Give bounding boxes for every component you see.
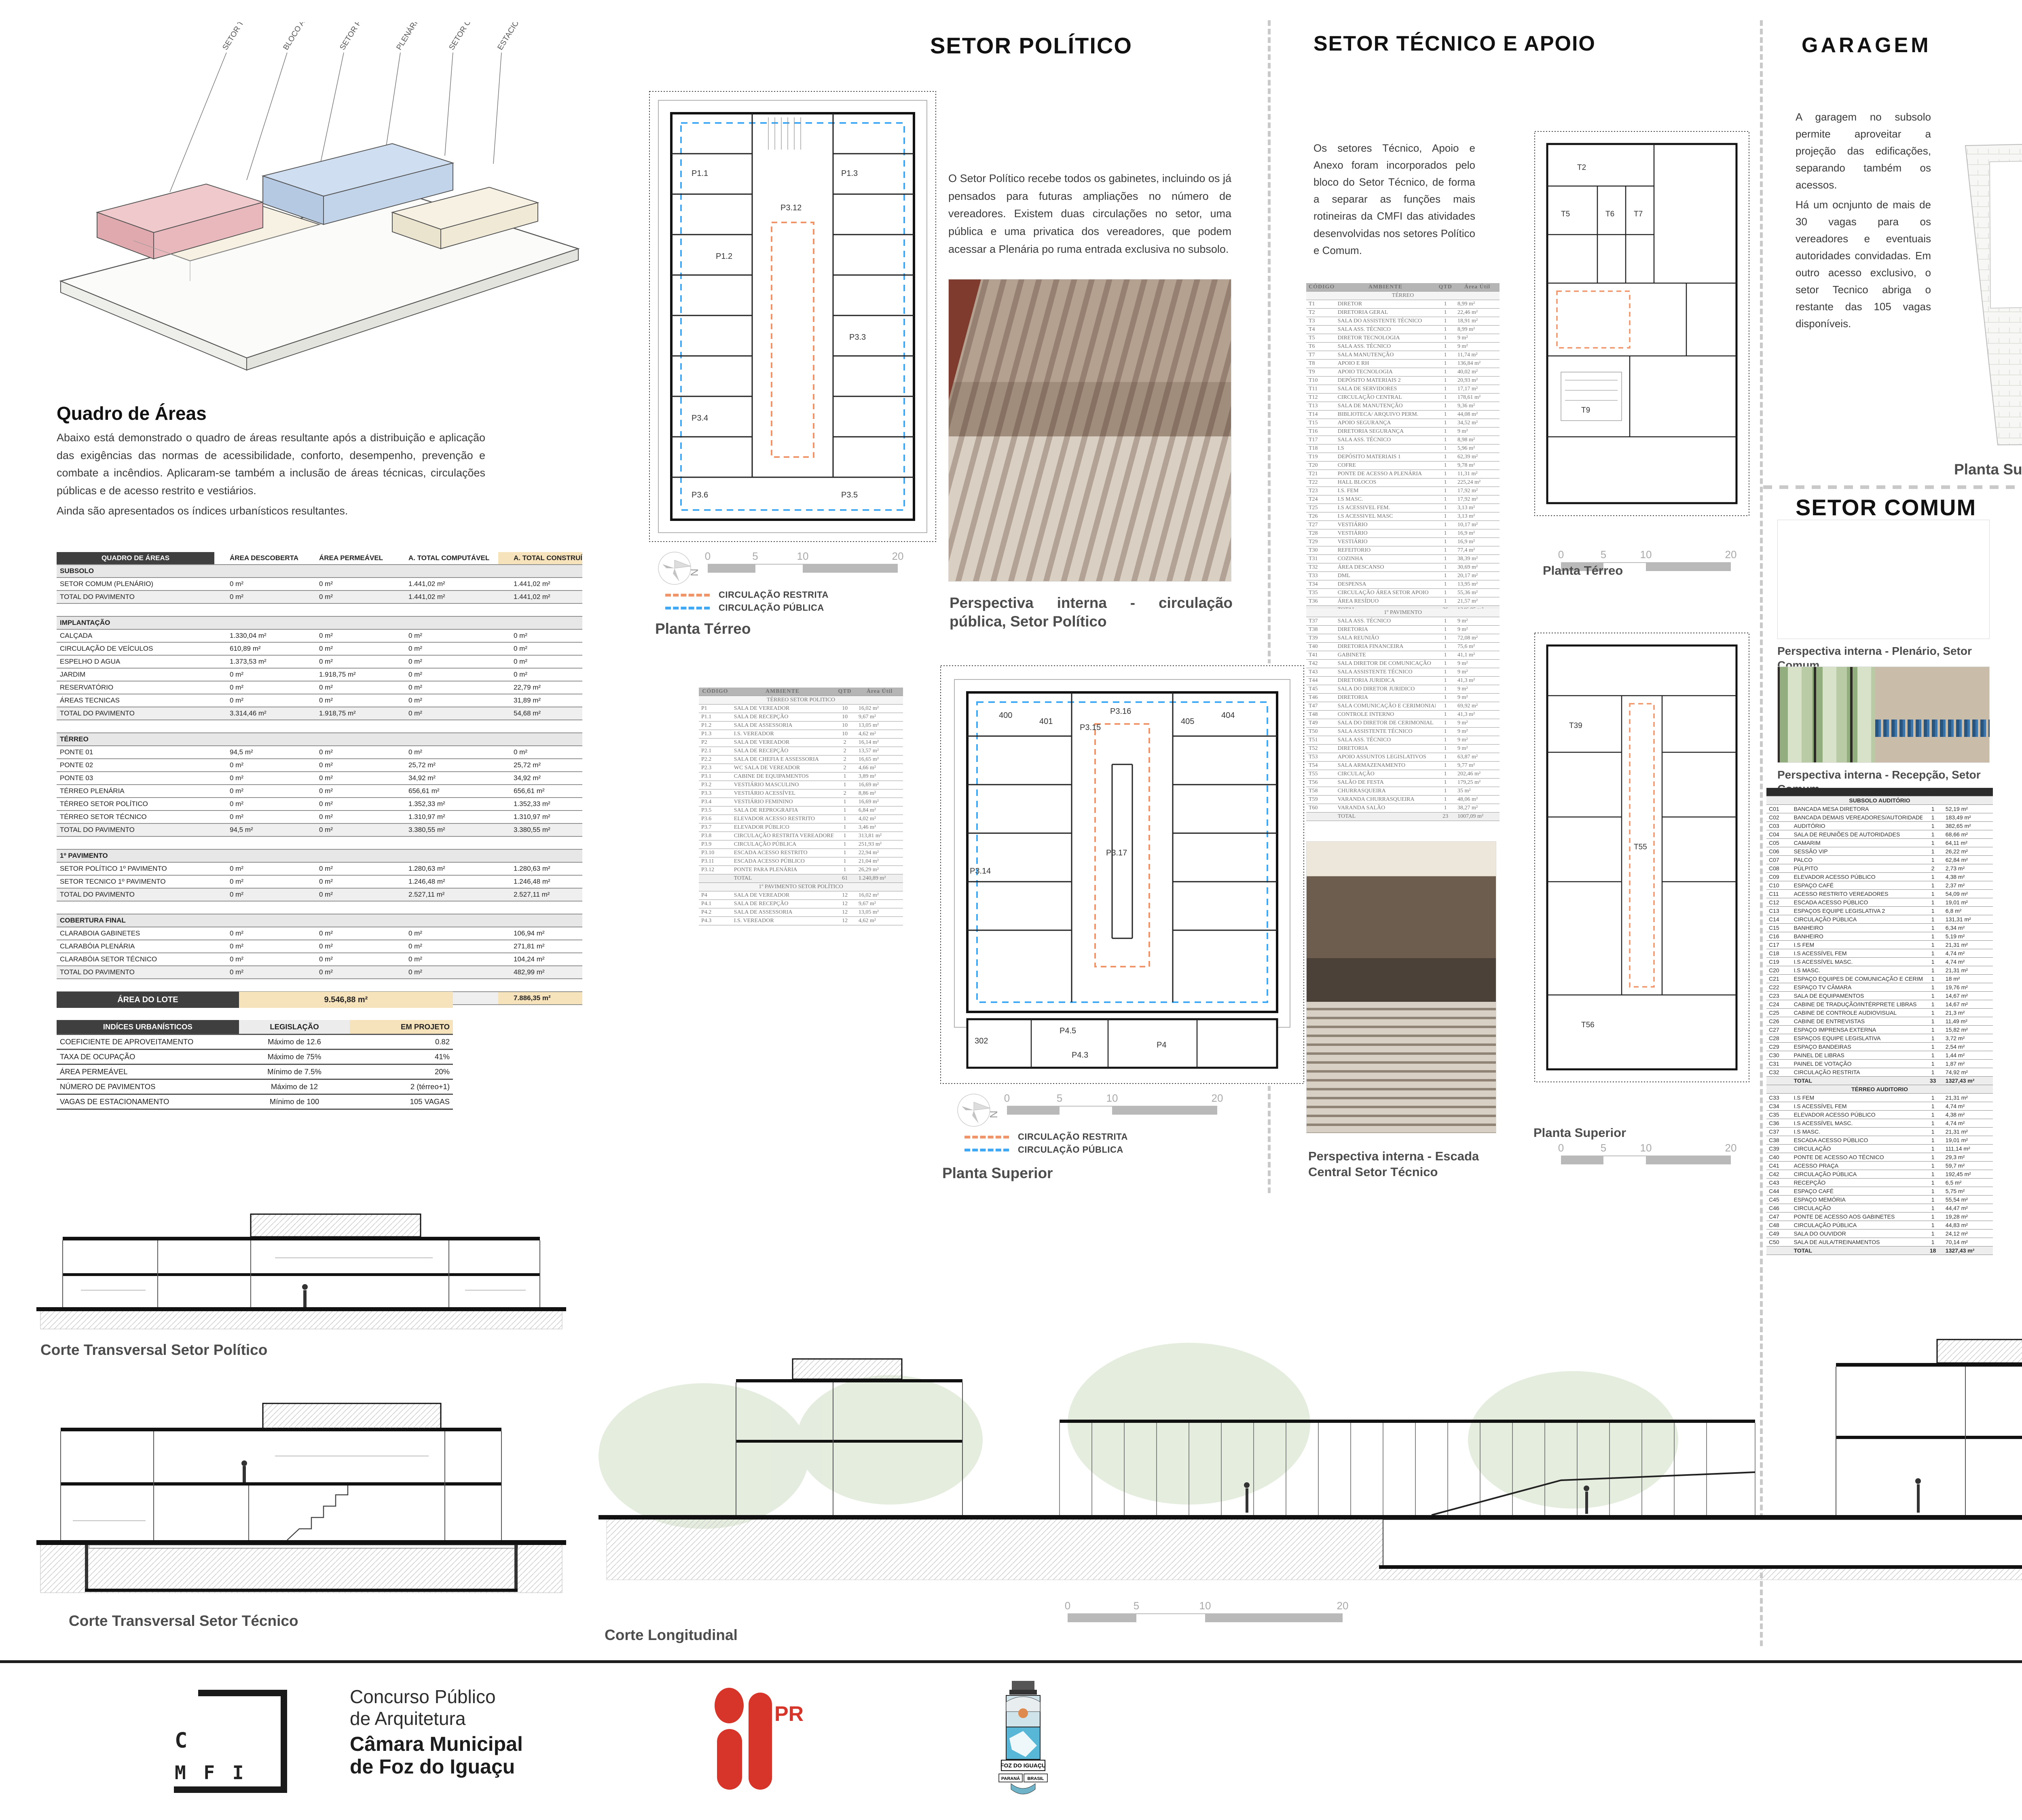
section-header-row: 1º PAVIMENTO SETOR POLÍTICO bbox=[699, 883, 903, 891]
section-header-row: TÉRREO bbox=[57, 733, 582, 746]
scale-label: 0 bbox=[1558, 1142, 1564, 1154]
column-header: QTD bbox=[1923, 788, 1943, 796]
svg-text:T2: T2 bbox=[1577, 163, 1586, 172]
table-row: T25I.S ACESSIVEL FEM.13,13 m² bbox=[1306, 504, 1500, 512]
svg-text:P3.17: P3.17 bbox=[1106, 849, 1127, 857]
scale-bar bbox=[708, 564, 898, 574]
column-header: Área Útil bbox=[1943, 788, 1993, 796]
table-row: PONTE 020 m²0 m²25,72 m²25,72 m² bbox=[57, 759, 582, 772]
table-row: C40PONTE DE ACESSO AO TÉCNICO129,3 m² bbox=[1766, 1153, 1993, 1162]
scale-label: 20 bbox=[1212, 1092, 1223, 1105]
sp-superior-legend: CIRCULAÇÃO RESTRITACIRCULAÇÃO PÚBLICA bbox=[964, 1129, 1128, 1158]
table-row: P4.1SALA DE RECEPÇÃO129,67 m² bbox=[699, 900, 903, 908]
sp-legend: CIRCULAÇÃO RESTRITACIRCULAÇÃO PÚBLICA bbox=[665, 587, 829, 616]
table-row: T9APOIO TECNOLOGIA140,02 m² bbox=[1306, 368, 1500, 377]
section-header-row: SUBSOLO bbox=[57, 565, 582, 578]
svg-text:PARANÁ: PARANÁ bbox=[1001, 1776, 1020, 1781]
column-header: CÓDIGO bbox=[1766, 788, 1791, 796]
garagem-caption: Planta Subsolo bbox=[1954, 460, 2022, 479]
area-table: QUADRO DE ÁREASÁREA DESCOBERTAÁREA PERME… bbox=[57, 552, 582, 1005]
st-room-table-terreo: CÓDIGOAMBIENTEQTDÁrea ÚtilTÉRREOT1DIRETO… bbox=[1306, 283, 1500, 614]
scale-label: 5 bbox=[1601, 548, 1606, 561]
total-row: VAGAS DE ESTACIONAMENTOMínimo de 100105 … bbox=[57, 1094, 453, 1109]
section-header-row: IMPLANTAÇÃO bbox=[57, 616, 582, 629]
table-row: C38ESCADA ACESSO PÚBLICO119,01 m² bbox=[1766, 1136, 1993, 1145]
table-row: T37SALA ASS. TÉCNICO19 m² bbox=[1306, 617, 1500, 626]
table-row: T11SALA DE SERVIDORES117,17 m² bbox=[1306, 385, 1500, 394]
table-row: T2DIRETORIA GERAL122,46 m² bbox=[1306, 309, 1500, 317]
lote-table: ÁREA DO LOTE9.546,88 m² bbox=[57, 992, 453, 1008]
table-row: T26I.S ACESSIVEL MASC13,13 m² bbox=[1306, 512, 1500, 521]
corte-tecnico-caption: Corte Transversal Setor Técnico bbox=[69, 1612, 298, 1630]
table-row: C30PAINEL DE LIBRAS11,44 m² bbox=[1766, 1051, 1993, 1060]
table-row: C45ESPAÇO MEMÓRIA155,54 m² bbox=[1766, 1196, 1993, 1204]
section-header-row: SUBSOLO AUDITÓRIO bbox=[1766, 796, 1993, 805]
corte-transversal-tecnico-drawing bbox=[24, 1375, 578, 1606]
table-row: T18I.S15,96 m² bbox=[1306, 444, 1500, 453]
table-row: T56SALÃO DE FESTA1179,25 m² bbox=[1306, 779, 1500, 787]
table-row: P3.9CIRCULAÇÃO PÚBLICA1251,93 m² bbox=[699, 840, 903, 849]
legend-item: CIRCULAÇÃO PÚBLICA bbox=[665, 603, 829, 613]
svg-text:T9: T9 bbox=[1581, 406, 1590, 415]
table-row: SETOR COMUM (PLENÁRIO)0 m²0 m²1.441,02 m… bbox=[57, 578, 582, 590]
column-header: EM PROJETO bbox=[350, 1020, 453, 1035]
setor-tecnico-title: SETOR TÉCNICO E APOIO bbox=[1313, 32, 1596, 56]
wordmark-line2: de Arquitetura bbox=[350, 1708, 601, 1729]
data-table: ÁREA DO LOTE9.546,88 m² bbox=[57, 992, 453, 1008]
table-header-row: CÓDIGOAMBIENTEQTDÁrea Útil bbox=[1766, 788, 1993, 796]
table-row: CLARABOIA GABINETES0 m²0 m²0 m²106,94 m² bbox=[57, 927, 582, 940]
svg-text:T55: T55 bbox=[1634, 843, 1647, 851]
svg-text:FOZ DO IGUAÇU: FOZ DO IGUAÇU bbox=[1000, 1762, 1046, 1769]
table-row: T44DIRETORIA JURIDICA141,3 m² bbox=[1306, 677, 1500, 685]
table-row: C32CIRCULAÇÃO RESTRITA174,92 m² bbox=[1766, 1068, 1993, 1077]
table-row: C42CIRCULAÇÃO PÚBLICA1192,45 m² bbox=[1766, 1170, 1993, 1179]
table-row: T29VESTIÁRIO116,9 m² bbox=[1306, 538, 1500, 546]
svg-text:P3.5: P3.5 bbox=[841, 491, 858, 499]
table-row: C27ESPAÇO IMPRENSA EXTERNA115,82 m² bbox=[1766, 1026, 1993, 1034]
scale-label: 20 bbox=[892, 550, 904, 563]
table-row: C35ELEVADOR ACESSO PÚBLICO14,38 m² bbox=[1766, 1111, 1993, 1119]
svg-text:T5: T5 bbox=[1561, 210, 1570, 218]
table-row: P2.3WC SALA DE VEREADOR24,66 m² bbox=[699, 764, 903, 772]
table-row: NÚMERO DE PAVIMENTOSMáximo de 122 (térre… bbox=[57, 1079, 453, 1094]
scale-label: 5 bbox=[752, 550, 758, 563]
section-header-row: TÉRREO bbox=[1306, 292, 1500, 300]
data-table: CÓDIGOAMBIENTEQTDÁrea ÚtilSUBSOLO AUDITÓ… bbox=[1766, 788, 1993, 1255]
column-header: ÁREA PERMEÁVEL bbox=[304, 552, 393, 565]
data-table: CÓDIGOAMBIENTEQTDÁrea ÚtilTÉRREO SETOR P… bbox=[699, 688, 903, 925]
svg-text:P3.15: P3.15 bbox=[1080, 723, 1101, 732]
column-header: QUADRO DE ÁREAS bbox=[57, 552, 214, 565]
table-row: CLARABÓIA SETOR TÉCNICO0 m²0 m²0 m²104,2… bbox=[57, 953, 582, 966]
table-row: T52DIRETORIA19 m² bbox=[1306, 745, 1500, 753]
st-text: Os setores Técnico, Apoio e Anexo foram … bbox=[1313, 140, 1475, 261]
corte-longitudinal-drawing bbox=[582, 1230, 2022, 1606]
table-row: C12ESCADA ACESSO PÚBLICO119,01 m² bbox=[1766, 898, 1993, 907]
table-row: T36ÁREA RESÍDUO121,57 m² bbox=[1306, 597, 1500, 606]
svg-text:SETOR COMUM: SETOR COMUM bbox=[447, 22, 485, 52]
table-row: T33DML120,17 m² bbox=[1306, 572, 1500, 580]
column-header: AMBIENTE bbox=[1791, 788, 1923, 796]
column-header: A. TOTAL CONSTRUÍDA bbox=[498, 552, 582, 565]
svg-text:P3.16: P3.16 bbox=[1110, 707, 1131, 716]
cmfi-logo-mfi: M F I bbox=[175, 1762, 247, 1784]
scalebar: 051020 bbox=[1068, 1600, 1343, 1625]
compass-icon: N bbox=[954, 1092, 999, 1128]
table-row: C08PÚLPITO22,73 m² bbox=[1766, 864, 1993, 873]
scale-label: 0 bbox=[705, 550, 711, 563]
setor-comum-title: SETOR COMUM bbox=[1796, 494, 1976, 521]
svg-text:P3.6: P3.6 bbox=[692, 491, 708, 499]
scale-label: 20 bbox=[1725, 1142, 1737, 1154]
svg-text:T56: T56 bbox=[1581, 1021, 1595, 1029]
st-room-table-pavimento: 1º PAVIMENTOT37SALA ASS. TÉCNICO19 m²T38… bbox=[1306, 609, 1500, 821]
table-header-row: CÓDIGOAMBIENTEQTDÁrea Útil bbox=[1306, 283, 1500, 292]
table-row: T13SALA DE MANUTENÇÃO19,36 m² bbox=[1306, 402, 1500, 411]
table-row: C49SALA DO OUVIDOR124,12 m² bbox=[1766, 1230, 1993, 1238]
table-row: ESPELHO D AGUA1.373,53 m²0 m²0 m²0 m² bbox=[57, 655, 582, 668]
table-row: C31PAINEL DE VOTAÇÃO11,87 m² bbox=[1766, 1060, 1993, 1068]
sp-superior-compass-scale: N 051020 bbox=[954, 1092, 1237, 1128]
sc-plenario-perspective bbox=[1777, 520, 1990, 639]
table-row: T60VARANDA SALÃO138,27 m² bbox=[1306, 804, 1500, 813]
sp-planta-superior-caption: Planta Superior bbox=[942, 1164, 1053, 1183]
section-header-row: COBERTURA FINAL bbox=[57, 914, 582, 927]
cmfi-logo-c: C bbox=[175, 1729, 187, 1753]
svg-text:P3.12: P3.12 bbox=[780, 203, 802, 212]
table-row: C29ESPAÇO BANDEIRAS12,54 m² bbox=[1766, 1043, 1993, 1051]
table-row: RESERVATÓRIO0 m²0 m²0 m²22,79 m² bbox=[57, 681, 582, 694]
svg-text:P3.3: P3.3 bbox=[849, 333, 866, 342]
scale-bar bbox=[1007, 1106, 1217, 1115]
table-row: T39SALA REUNIÃO172,08 m² bbox=[1306, 634, 1500, 643]
table-row: C47PONTE DE ACESSO AOS GABINETES119,28 m… bbox=[1766, 1213, 1993, 1221]
svg-text:P4.5: P4.5 bbox=[1060, 1026, 1076, 1035]
table-row: T55CIRCULAÇÃO1202,46 m² bbox=[1306, 770, 1500, 779]
table-row: T24I.S MASC.117,92 m² bbox=[1306, 495, 1500, 504]
scale-label: 10 bbox=[797, 550, 809, 563]
legend-label: CIRCULAÇÃO PÚBLICA bbox=[1018, 1145, 1123, 1155]
scale-label: 20 bbox=[1337, 1600, 1349, 1612]
table-row: T41GABINETE141,1 m² bbox=[1306, 651, 1500, 660]
table-row: C21ESPAÇO EQUIPES DE COMUNICAÇÃO E CERIM… bbox=[1766, 975, 1993, 983]
table-row: P3.6ELEVADOR ACESSO RESTRITO14,02 m² bbox=[699, 815, 903, 823]
table-row: T30REFEITORIO177,4 m² bbox=[1306, 546, 1500, 555]
table-row: T49SALA DO DIRETOR DE CERIMONIAL19 m² bbox=[1306, 719, 1500, 728]
cmfi-logo: C M F I bbox=[174, 1690, 287, 1793]
table-row: C04SALA DE REUNIÕES DE AUTORIDADES168,66… bbox=[1766, 830, 1993, 839]
table-row: T47SALA COMUNICAÇÃO E CERIMONIAL169,92 m… bbox=[1306, 702, 1500, 711]
table-row: T54SALA ARMAZENAMENTO19,77 m² bbox=[1306, 762, 1500, 770]
column-header: QTD bbox=[833, 688, 856, 696]
competition-wordmark: Concurso Público de Arquitetura Câmara M… bbox=[350, 1686, 601, 1778]
table-row: TÉRREO SETOR TÉCNICO0 m²0 m²1.310,97 m²1… bbox=[57, 811, 582, 823]
total-row: TOTAL331327,43 m² bbox=[1766, 1077, 1993, 1085]
column-header: CÓDIGO bbox=[699, 688, 732, 696]
legend-label: CIRCULAÇÃO PÚBLICA bbox=[719, 603, 824, 613]
sc-recepcao-perspective bbox=[1777, 667, 1990, 763]
table-row: P1.2SALA DE ASSESSORIA1013,05 m² bbox=[699, 722, 903, 730]
table-row: C24CABINE DE TRADUÇÃO/INTÉRPRETE LIBRAS1… bbox=[1766, 1000, 1993, 1009]
svg-text:P4: P4 bbox=[1157, 1041, 1166, 1050]
column-header: A. TOTAL COMPUTÁVEL bbox=[393, 552, 498, 565]
scale-label: 5 bbox=[1601, 1142, 1606, 1154]
column-header: ÁREA DESCOBERTA bbox=[214, 552, 304, 565]
svg-text:P1.1: P1.1 bbox=[692, 169, 708, 178]
table-row: CLARABÓIA PLENÁRIA0 m²0 m²0 m²271,81 m² bbox=[57, 940, 582, 953]
table-header-row: INDÍCES URBANÍSTICOSLEGISLAÇÃOEM PROJETO bbox=[57, 1020, 453, 1035]
scale-label: 10 bbox=[1199, 1600, 1211, 1612]
st-planta-terreo-caption: Planta Térreo bbox=[1543, 563, 1623, 579]
svg-text:P4.3: P4.3 bbox=[1072, 1051, 1088, 1060]
data-table: CÓDIGOAMBIENTEQTDÁrea ÚtilTÉRREOT1DIRETO… bbox=[1306, 283, 1500, 614]
table-row: C07PALCO162,84 m² bbox=[1766, 856, 1993, 864]
garagem-title: GARAGEM bbox=[1802, 33, 1931, 57]
table-row: T15APOIO SEGURANÇA134,52 m² bbox=[1306, 419, 1500, 427]
table-row: ÁREA PERMEÁVELMínimo de 7.5%20% bbox=[57, 1064, 453, 1079]
table-row: C46CIRCULAÇÃO144,47 m² bbox=[1766, 1204, 1993, 1213]
column-header: Área Útil bbox=[856, 688, 903, 696]
table-row: P4.2SALA DE ASSESSORIA1213,05 m² bbox=[699, 908, 903, 917]
table-row: P1SALA DE VEREADOR1016,02 m² bbox=[699, 705, 903, 713]
table-row: T16DIRETORIA SEGURANÇA19 m² bbox=[1306, 427, 1500, 436]
column-header: INDÍCES URBANÍSTICOS bbox=[57, 1020, 239, 1035]
table-row: C13ESPAÇOS EQUIPE LEGISLATIVA 216,8 m² bbox=[1766, 907, 1993, 915]
scale-label: 0 bbox=[1065, 1600, 1070, 1612]
svg-text:405: 405 bbox=[1181, 717, 1194, 726]
svg-text:PLENÁRIO: PLENÁRIO bbox=[395, 22, 423, 52]
total-row: TOTAL611.240,89 m² bbox=[699, 874, 903, 883]
table-row: T58CHURRASQUEIRA135 m² bbox=[1306, 787, 1500, 796]
table-row: T35CIRCULAÇÃO ÁREA SETOR APOIO155,36 m² bbox=[1306, 589, 1500, 597]
svg-text:P3.14: P3.14 bbox=[970, 867, 991, 876]
table-row: C14CIRCULAÇÃO PÚBLICA1131,31 m² bbox=[1766, 915, 1993, 924]
legend-dash-icon bbox=[964, 1136, 1009, 1139]
data-table: INDÍCES URBANÍSTICOSLEGISLAÇÃOEM PROJETO… bbox=[57, 1020, 453, 1110]
section-header-row: 1º PAVIMENTO bbox=[1306, 609, 1500, 617]
table-row: C33I.S FEM121,31 m² bbox=[1766, 1094, 1993, 1102]
table-row: T8APOIO E RH1136,84 m² bbox=[1306, 360, 1500, 368]
table-row: C16BANHEIRO15,19 m² bbox=[1766, 932, 1993, 941]
table-row: C34I.S ACESSÍVEL FEM14,74 m² bbox=[1766, 1102, 1993, 1111]
table-row: P3.5SALA DE REPROGRAFIA16,84 m² bbox=[699, 806, 903, 815]
wordmark-line1: Concurso Público bbox=[350, 1686, 601, 1708]
table-row: C37I.S MASC.121,31 m² bbox=[1766, 1128, 1993, 1136]
table-row: C09ELEVADOR ACESSO PÚBLICO14,38 m² bbox=[1766, 873, 1993, 881]
svg-text:SETOR TÉCNICO: SETOR TÉCNICO bbox=[221, 22, 261, 52]
legend-dash-icon bbox=[665, 594, 710, 597]
legend-item: CIRCULAÇÃO RESTRITA bbox=[665, 590, 829, 600]
legend-item: CIRCULAÇÃO RESTRITA bbox=[964, 1132, 1128, 1142]
table-row: P3.1CABINE DE EQUIPAMENTOS13,89 m² bbox=[699, 772, 903, 781]
table-row: P2.2SALA DE CHEFIA E ASSESSORIA216,65 m² bbox=[699, 756, 903, 764]
table-row: P2SALA DE VEREADOR216,14 m² bbox=[699, 739, 903, 747]
quadro-areas-section: Quadro de Áreas Abaixo está demonstrado … bbox=[57, 402, 485, 523]
sp-room-table: CÓDIGOAMBIENTEQTDÁrea ÚtilTÉRREO SETOR P… bbox=[699, 688, 903, 925]
table-row: P3.12PONTE PARA PLENÁRIA126,29 m² bbox=[699, 866, 903, 874]
table-row: T1DIRETOR18,99 m² bbox=[1306, 300, 1500, 309]
table-row: CIRCULAÇÃO DE VEÍCULOS610,89 m²0 m²0 m²0… bbox=[57, 642, 582, 655]
quadro-areas-paragraph-2: Ainda são apresentados os índices urbaní… bbox=[57, 502, 485, 520]
table-row: P1.3I.S. VEREADOR104,62 m² bbox=[699, 730, 903, 739]
svg-text:404: 404 bbox=[1221, 711, 1235, 720]
table-row: T32ÁREA DESCANSO130,69 m² bbox=[1306, 563, 1500, 572]
table-row: C02BANCADA DEMAIS VEREADORES/AUTORIDADES… bbox=[1766, 813, 1993, 822]
table-row: CALÇADA1.330,04 m²0 m²0 m²0 m² bbox=[57, 629, 582, 642]
total-row: TOTAL DO PAVIMENTO0 m²0 m²2.527,11 m²2.5… bbox=[57, 888, 582, 901]
table-row: T59VARANDA CHURRASQUEIRA148,06 m² bbox=[1306, 796, 1500, 804]
table-header-row: CÓDIGOAMBIENTEQTDÁrea Útil bbox=[699, 688, 903, 696]
sp-perspective-caption: Perspectiva interna - circulação pública… bbox=[950, 594, 1233, 631]
svg-text:401: 401 bbox=[1039, 717, 1053, 726]
table-row: C19I.S ACESSÍVEL MASC.14,74 m² bbox=[1766, 958, 1993, 966]
compass-icon: N bbox=[655, 550, 700, 586]
table-row: TAXA DE OCUPAÇÃOMáximo de 75%41% bbox=[57, 1050, 453, 1064]
svg-text:T39: T39 bbox=[1569, 722, 1582, 730]
table-row: T12CIRCULAÇÃO CENTRAL1178,61 m² bbox=[1306, 394, 1500, 402]
sp-compass-scale: N 051020 bbox=[655, 550, 906, 586]
table-row: P3.7ELEVADOR PÚBLICO13,46 m² bbox=[699, 823, 903, 832]
table-row: P3.4VESTIÁRIO FEMININO116,69 m² bbox=[699, 798, 903, 806]
scale-label: 0 bbox=[1004, 1092, 1010, 1105]
section-header-row: 1º PAVIMENTO bbox=[57, 849, 582, 862]
footer-divider bbox=[0, 1660, 2022, 1663]
table-row: T51SALA ASS. TÉCNICO19 m² bbox=[1306, 736, 1500, 745]
table-row: T5DIRETOR TECNOLOGIA19 m² bbox=[1306, 334, 1500, 343]
indices-table: INDÍCES URBANÍSTICOSLEGISLAÇÃOEM PROJETO… bbox=[57, 1020, 453, 1110]
corte-transversal-politico-drawing bbox=[24, 1189, 578, 1335]
sc-room-table: CÓDIGOAMBIENTEQTDÁrea ÚtilSUBSOLO AUDITÓ… bbox=[1766, 788, 1993, 1255]
table-row: T46DIRETORIA19 m² bbox=[1306, 694, 1500, 702]
garagem-text: A garagem no subsolo permite aproveitar … bbox=[1796, 108, 1931, 334]
table-row: C06SESSÃO VIP126,22 m² bbox=[1766, 847, 1993, 856]
table-row: T31COZINHA138,39 m² bbox=[1306, 555, 1500, 563]
scale-bar bbox=[1561, 1155, 1731, 1165]
scale-label: 10 bbox=[1640, 1142, 1652, 1154]
table-row: T21PONTE DE ACESSO A PLENÁRIA111,31 m² bbox=[1306, 470, 1500, 478]
legend-label: CIRCULAÇÃO RESTRITA bbox=[1018, 1132, 1128, 1142]
table-row: T43SALA ASSISTENTE TÉCNICO19 m² bbox=[1306, 668, 1500, 677]
svg-text:P1.3: P1.3 bbox=[841, 169, 858, 178]
table-row: TÉRREO PLENÁRIA0 m²0 m²656,61 m²656,61 m… bbox=[57, 785, 582, 798]
svg-text:N: N bbox=[988, 1111, 999, 1118]
total-row: TOTAL DO PAVIMENTO0 m²0 m²0 m²482,99 m² bbox=[57, 966, 582, 979]
table-row: TÉRREO SETOR POLÍTICO0 m²0 m²1.352,33 m²… bbox=[57, 798, 582, 811]
total-row: TOTAL181327,43 m² bbox=[1766, 1246, 1993, 1255]
table-row: C03AUDITÓRIO1382,65 m² bbox=[1766, 822, 1993, 830]
svg-text:BLOCO ANEXO: BLOCO ANEXO bbox=[281, 22, 318, 52]
sp-perspective-image bbox=[948, 279, 1231, 582]
legend-label: CIRCULAÇÃO RESTRITA bbox=[719, 590, 829, 600]
table-row: T22HALL BLOCOS1225,24 m² bbox=[1306, 478, 1500, 487]
scale-label: 10 bbox=[1640, 548, 1652, 561]
st-perspective-caption: Perspectiva interna - Escada Central Set… bbox=[1308, 1149, 1498, 1180]
table-row: ÁREA DO LOTE9.546,88 m² bbox=[57, 992, 453, 1008]
table-row: C39CIRCULAÇÃO1111,14 m² bbox=[1766, 1145, 1993, 1153]
total-row: TOTAL DO PAVIMENTO0 m²0 m²1.441,02 m²1.4… bbox=[57, 590, 582, 603]
table-row: C11ACESSO RESTRITO VEREADORES154,09 m² bbox=[1766, 890, 1993, 898]
table-row: C44ESPAÇO CAFÉ15,75 m² bbox=[1766, 1187, 1993, 1196]
svg-text:400: 400 bbox=[999, 711, 1012, 720]
table-row: T34DESPENSA113,95 m² bbox=[1306, 580, 1500, 589]
st-superior-scalebar: 051020 bbox=[1561, 1142, 1731, 1168]
scale-bar bbox=[1068, 1613, 1343, 1623]
svg-text:T6: T6 bbox=[1605, 210, 1614, 218]
table-row: PONTE 030 m²0 m²34,92 m²34,92 m² bbox=[57, 772, 582, 785]
column-header: LEGISLAÇÃO bbox=[239, 1020, 350, 1035]
legend-dash-icon bbox=[665, 607, 710, 609]
axonometric-diagram: SETOR TÉCNICO BLOCO ANEXO SETOR POLÍTICO… bbox=[36, 22, 599, 390]
legend-item: CIRCULAÇÃO PÚBLICA bbox=[964, 1145, 1128, 1155]
table-row: C18I.S ACESSÍVEL FEM14,74 m² bbox=[1766, 949, 1993, 958]
table-row: C43RECEPÇÃO16,5 m² bbox=[1766, 1179, 1993, 1187]
quadro-areas-paragraph: Abaixo está demonstrado o quadro de área… bbox=[57, 429, 485, 500]
table-row: ÁREAS TECNICAS0 m²0 m²0 m²31,89 m² bbox=[57, 694, 582, 707]
svg-text:302: 302 bbox=[975, 1037, 988, 1045]
table-row: T27VESTIÁRIO110,17 m² bbox=[1306, 521, 1500, 529]
iab-pr-logo: PR bbox=[710, 1685, 811, 1794]
table-row: T20COFRE19,78 m² bbox=[1306, 461, 1500, 470]
quadro-areas-title: Quadro de Áreas bbox=[57, 402, 485, 424]
table-row: T42SALA DIRETOR DE COMUNICAÇÃO19 m² bbox=[1306, 660, 1500, 668]
section-header-row: TÉRREO SETOR POLITICO bbox=[699, 696, 903, 705]
table-row: P3.2VESTIÁRIO MASCULINO116,69 m² bbox=[699, 781, 903, 789]
column-header: Área Útil bbox=[1455, 283, 1500, 292]
table-row: COEFICIENTE DE APROVEITAMENTOMáximo de 1… bbox=[57, 1035, 453, 1050]
total-row: TOTAL DO PAVIMENTO3.314,46 m²1.918,75 m²… bbox=[57, 707, 582, 720]
table-row: T17SALA ASS. TÉCNICO18,98 m² bbox=[1306, 436, 1500, 444]
table-row: C26CABINE DE ENTREVISTAS111,49 m² bbox=[1766, 1017, 1993, 1026]
corte-longitudinal-caption: Corte Longitudinal bbox=[605, 1626, 738, 1644]
scale-label: 20 bbox=[1725, 548, 1737, 561]
wordmark-line3: Câmara Municipal bbox=[350, 1733, 601, 1755]
sp-planta-terreo-plan: P1.1 P1.2 P1.3 P3.3 P3.4 P3.5 P3.6 P3.12 bbox=[647, 89, 938, 544]
table-row: C28ESPAÇOS EQUIPE LEGISLATIVA13,72 m² bbox=[1766, 1034, 1993, 1043]
table-row: T7SALA MANUTENÇÃO111,74 m² bbox=[1306, 351, 1500, 360]
st-planta-superior-caption: Planta Superior bbox=[1533, 1125, 1626, 1141]
svg-text:T7: T7 bbox=[1634, 210, 1643, 218]
data-table: QUADRO DE ÁREASÁREA DESCOBERTAÁREA PERME… bbox=[57, 552, 582, 1005]
svg-text:PR: PR bbox=[774, 1702, 804, 1726]
svg-text:ESTACIONAMENTO: ESTACIONAMENTO bbox=[496, 22, 541, 52]
st-planta-terreo-plan: T2 T5 T6 T7 T9 bbox=[1533, 129, 1751, 518]
table-row: T38DIRETORIA19 m² bbox=[1306, 626, 1500, 634]
table-row: C36I.S ACESSÍVEL MASC.14,74 m² bbox=[1766, 1119, 1993, 1128]
table-row: C05CAMARIM164,11 m² bbox=[1766, 839, 1993, 847]
table-row: C10ESPAÇO CAFÉ12,37 m² bbox=[1766, 881, 1993, 890]
column-header: AMBIENTE bbox=[732, 688, 834, 696]
svg-text:N: N bbox=[688, 569, 700, 576]
table-row: T53APOIO ASSUNTOS LEGISLATIVOS163,87 m² bbox=[1306, 753, 1500, 762]
scale-label: 0 bbox=[1558, 548, 1564, 561]
table-row: C50SALA DE AULA/TREINAMENTOS170,14 m² bbox=[1766, 1238, 1993, 1246]
section-header-row: TÉRREO AUDITORIO bbox=[1766, 1085, 1993, 1094]
table-row: JARDIM0 m²1.918,75 m²0 m²0 m² bbox=[57, 668, 582, 681]
sp-planta-superior-plan: 400 401 404 405 P3.16 P3.15 P3.17 P3.14 … bbox=[938, 663, 1306, 1086]
table-row: C25CABINE DE CONTROLE AUDIOVISUAL121,3 m… bbox=[1766, 1009, 1993, 1017]
table-row: C48CIRCULAÇÃO PÚBLICA144,83 m² bbox=[1766, 1221, 1993, 1230]
table-row: T19DEPÓSITO MATERIAIS 1162,39 m² bbox=[1306, 453, 1500, 461]
svg-text:P3.4: P3.4 bbox=[692, 414, 708, 423]
svg-text:BRASIL: BRASIL bbox=[1028, 1776, 1044, 1781]
table-row: P3.10ESCADA ACESSO RESTRITO122,94 m² bbox=[699, 849, 903, 857]
st-perspective-image bbox=[1306, 841, 1496, 1133]
scale-label: 5 bbox=[1057, 1092, 1062, 1105]
table-row: C15BANHEIRO16,34 m² bbox=[1766, 924, 1993, 932]
column-header: AMBIENTE bbox=[1335, 283, 1436, 292]
table-row: T23I.S. FEM117,92 m² bbox=[1306, 487, 1500, 495]
